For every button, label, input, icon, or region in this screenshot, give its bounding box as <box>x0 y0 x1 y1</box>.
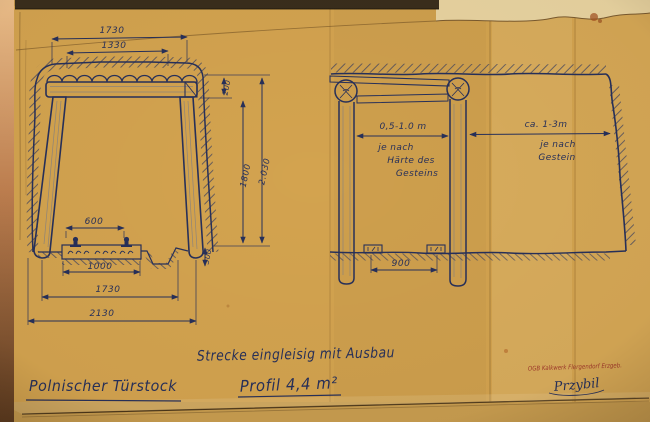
scanned-drawing-page: 1730 1330 600 1000 1730 2130 300 200 180… <box>0 0 650 422</box>
photo-vignette <box>0 0 650 422</box>
